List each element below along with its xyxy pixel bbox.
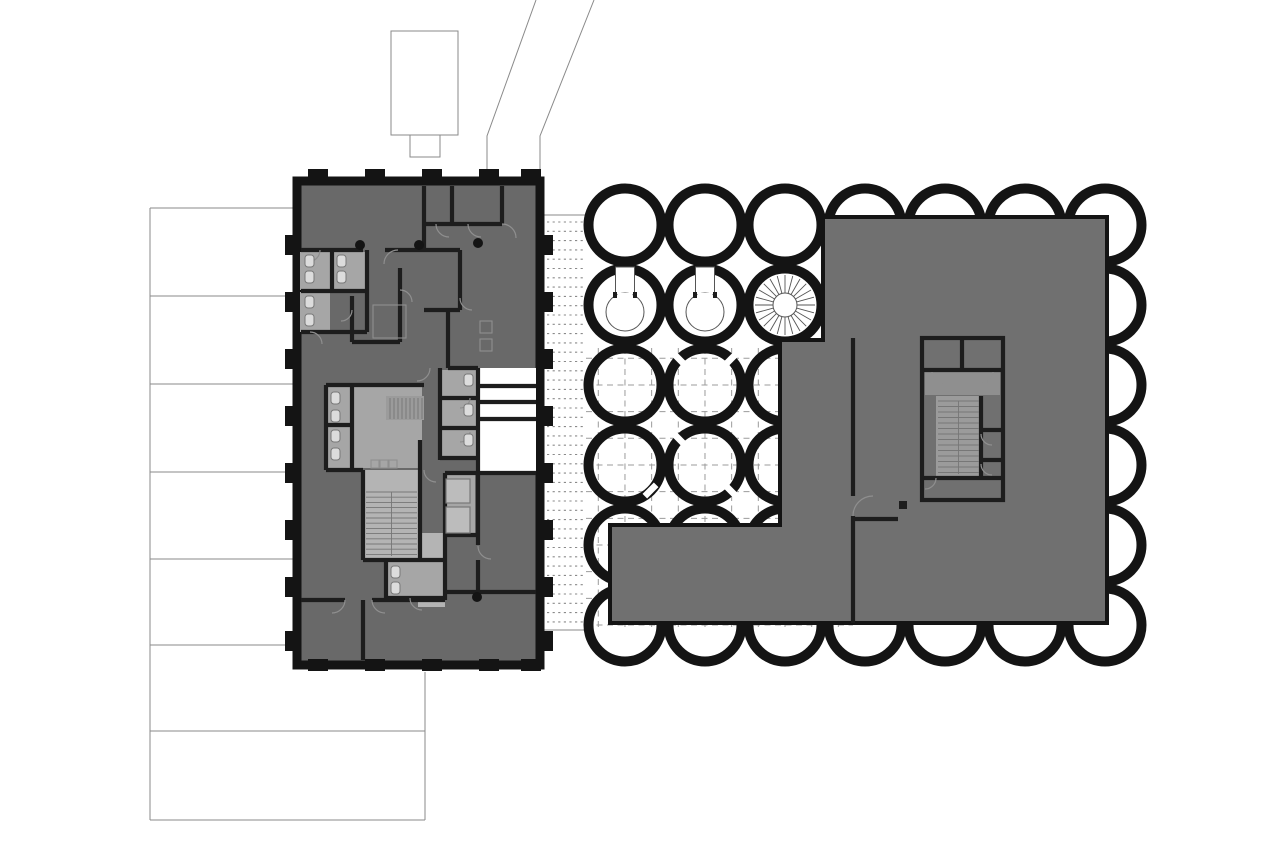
floor-plan-drawing [0,0,1280,854]
pilaster [285,631,297,651]
outbuilding [410,135,440,157]
pilaster [285,577,297,597]
wall-nib [899,501,907,509]
keyhole-shoulder [693,292,697,298]
keyhole-joint [698,293,713,301]
pilaster [541,577,553,597]
pilaster [479,659,499,671]
pilaster [521,659,541,671]
pilaster [308,659,328,671]
pilaster [285,235,297,255]
pilaster [479,169,499,181]
pilaster [285,292,297,312]
outbuilding [391,31,458,135]
pilaster [285,463,297,483]
keyhole-shoulder [633,292,637,298]
access-road-line [540,0,594,181]
bathroom-cell [300,292,330,332]
pilaster [422,169,442,181]
access-road-line [487,0,536,181]
spiral-stair-pavilion [755,275,815,335]
pilaster [521,169,541,181]
keyhole-shoulder [613,292,617,298]
pilaster [308,169,328,181]
pilaster [541,406,553,426]
left-building [285,169,553,671]
pilaster [365,659,385,671]
pilaster [422,659,442,671]
pilaster [541,235,553,255]
pilaster [541,520,553,540]
pilaster [285,406,297,426]
pilaster [285,349,297,369]
core-lobby [925,372,1000,395]
keyhole-shoulder [713,292,717,298]
pilaster [541,463,553,483]
spiral-newel [773,293,797,317]
site-plan-canvas [0,0,1280,854]
keyhole-joint [618,293,633,301]
pilaster [541,631,553,651]
pilaster [285,520,297,540]
pilaster [365,169,385,181]
pilaster [541,349,553,369]
pilaster [541,292,553,312]
